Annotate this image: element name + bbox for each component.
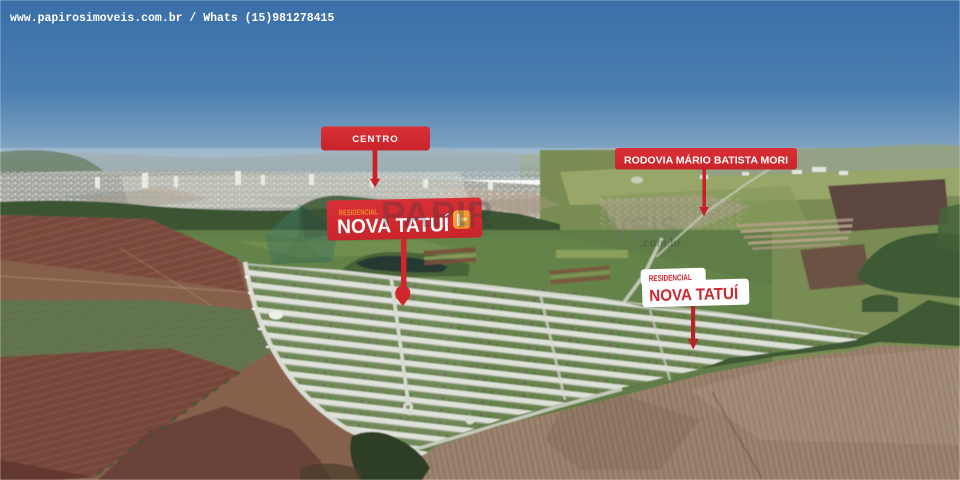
svg-text:PAPIR: PAPIR [381,194,494,235]
svg-text:www.papirosimoveis.com.br / Wh: www.papirosimoveis.com.br / Whats (15)98… [10,12,334,25]
svg-text:.com.br: .com.br [640,238,682,250]
svg-text:RODOVIA MÁRIO BATISTA MORI: RODOVIA MÁRIO BATISTA MORI [624,154,788,167]
svg-text:NOVA TATUÍ: NOVA TATUÍ [649,284,739,305]
svg-text:CENTRO: CENTRO [352,134,399,145]
svg-text:RESIDENCIAL: RESIDENCIAL [649,272,692,283]
